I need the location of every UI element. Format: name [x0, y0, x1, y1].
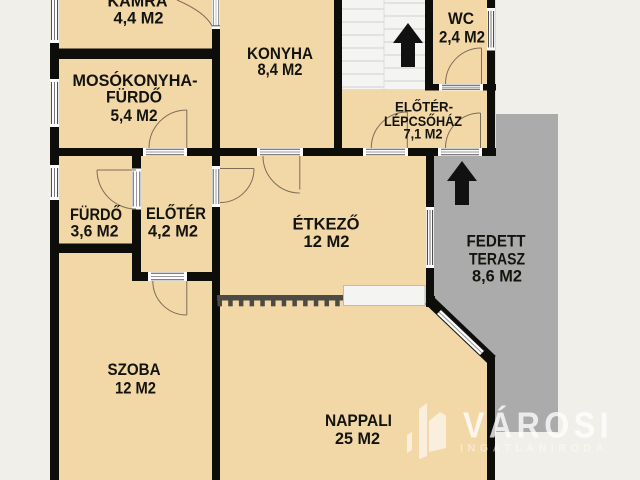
- svg-text:12 M2: 12 M2: [115, 379, 156, 398]
- svg-text:7,1 M2: 7,1 M2: [404, 126, 443, 142]
- svg-text:WC: WC: [448, 9, 474, 28]
- svg-text:FEDETT: FEDETT: [467, 232, 527, 251]
- svg-text:5,4 M2: 5,4 M2: [111, 106, 158, 125]
- svg-text:SZOBA: SZOBA: [108, 360, 161, 379]
- svg-text:ELŐTÉR: ELŐTÉR: [146, 204, 206, 223]
- svg-text:4,4 M2: 4,4 M2: [114, 9, 164, 28]
- svg-text:8,4 M2: 8,4 M2: [258, 60, 303, 79]
- svg-text:ELŐTÉR-: ELŐTÉR-: [395, 98, 453, 115]
- svg-text:12 M2: 12 M2: [304, 232, 350, 251]
- svg-text:2,4 M2: 2,4 M2: [439, 28, 485, 47]
- svg-text:8,6 M2: 8,6 M2: [472, 267, 522, 286]
- svg-text:NAPPALI: NAPPALI: [325, 411, 392, 430]
- svg-text:3,6 M2: 3,6 M2: [71, 222, 119, 241]
- svg-text:ÉTKEZŐ: ÉTKEZŐ: [293, 215, 360, 234]
- svg-text:INGATLANIRODA: INGATLANIRODA: [460, 443, 608, 455]
- svg-text:25 M2: 25 M2: [335, 429, 380, 448]
- svg-text:FÜRDŐ: FÜRDŐ: [106, 88, 162, 107]
- svg-text:VÁROSI: VÁROSI: [463, 405, 613, 446]
- svg-text:4,2 M2: 4,2 M2: [148, 222, 198, 241]
